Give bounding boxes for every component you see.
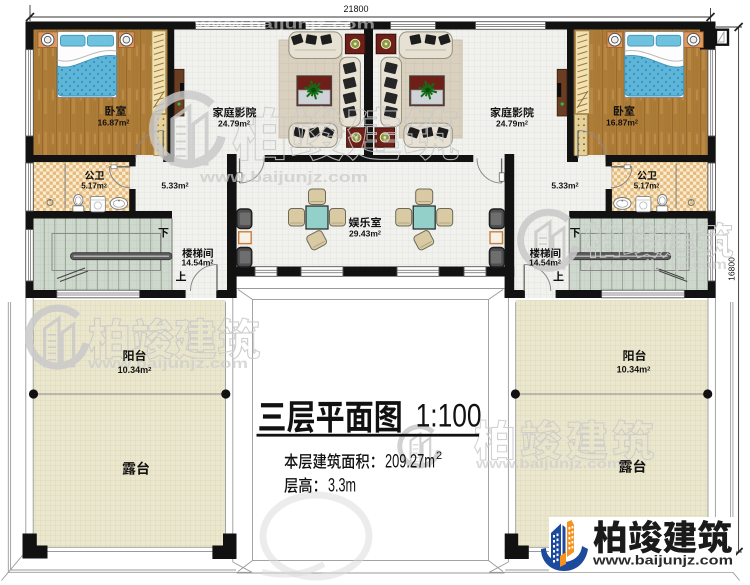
svg-text:5.17m2: 5.17m2 xyxy=(634,182,660,191)
svg-text:5.17m2: 5.17m2 xyxy=(81,182,107,191)
svg-text:5.33m2: 5.33m2 xyxy=(161,181,188,191)
svg-text:21800: 21800 xyxy=(343,4,368,14)
svg-text:24.79m2: 24.79m2 xyxy=(496,119,528,129)
svg-text:www.baijunjz.com: www.baijunjz.com xyxy=(193,18,375,32)
svg-text:29.43m2: 29.43m2 xyxy=(349,229,381,239)
svg-text:10.34m2: 10.34m2 xyxy=(118,365,153,375)
svg-text:10.34m2: 10.34m2 xyxy=(617,365,652,375)
svg-text:24.79m2: 24.79m2 xyxy=(218,119,250,129)
svg-text:14.54m2: 14.54m2 xyxy=(529,258,561,268)
svg-text:www.baijunjz.com: www.baijunjz.com xyxy=(592,553,733,568)
svg-text:www.baijunjz.com: www.baijunjz.com xyxy=(199,169,368,186)
svg-text:www.baijunjz.com: www.baijunjz.com xyxy=(87,356,248,371)
svg-text:www.baijunjz.com: www.baijunjz.com xyxy=(475,457,622,471)
svg-text:209.27m: 209.27m xyxy=(385,452,435,473)
svg-text:14.54m2: 14.54m2 xyxy=(182,258,214,268)
svg-text:3.3m: 3.3m xyxy=(328,476,356,497)
svg-text:16.87m2: 16.87m2 xyxy=(98,118,130,128)
svg-text:5.33m2: 5.33m2 xyxy=(551,181,578,191)
svg-text:16800: 16800 xyxy=(727,257,737,281)
svg-text:www.baijunjz.com: www.baijunjz.com xyxy=(582,257,727,272)
svg-text:16.87m2: 16.87m2 xyxy=(606,118,638,128)
svg-text:2: 2 xyxy=(436,450,442,462)
svg-text:1:100: 1:100 xyxy=(416,398,482,434)
